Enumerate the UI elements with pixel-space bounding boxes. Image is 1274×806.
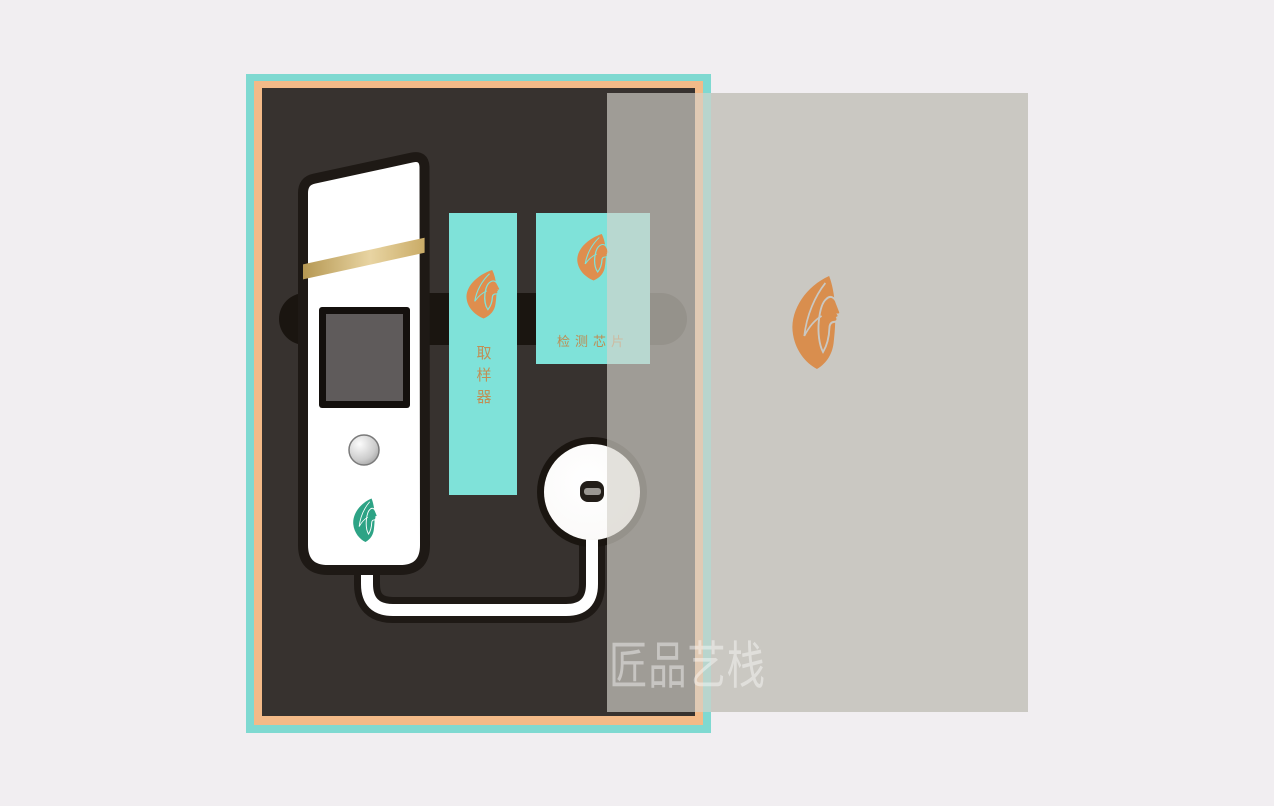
tester-device bbox=[300, 157, 428, 570]
sampler-card-leaf-face-logo-icon bbox=[462, 269, 504, 319]
sampler-card-label: 取样器 bbox=[473, 345, 494, 411]
lid-leaf-face-logo-icon bbox=[786, 274, 846, 370]
watermark: 匠品艺栈 bbox=[609, 642, 766, 693]
device-power-button bbox=[349, 435, 379, 465]
lid-translucent-edge bbox=[607, 93, 711, 712]
lid-panel bbox=[711, 93, 1028, 712]
packaging-mockup-canvas: { "scene": { "description": "skin-tester… bbox=[0, 0, 1274, 806]
sampler-card: 取样器 bbox=[449, 213, 517, 495]
device-screen bbox=[326, 314, 403, 401]
